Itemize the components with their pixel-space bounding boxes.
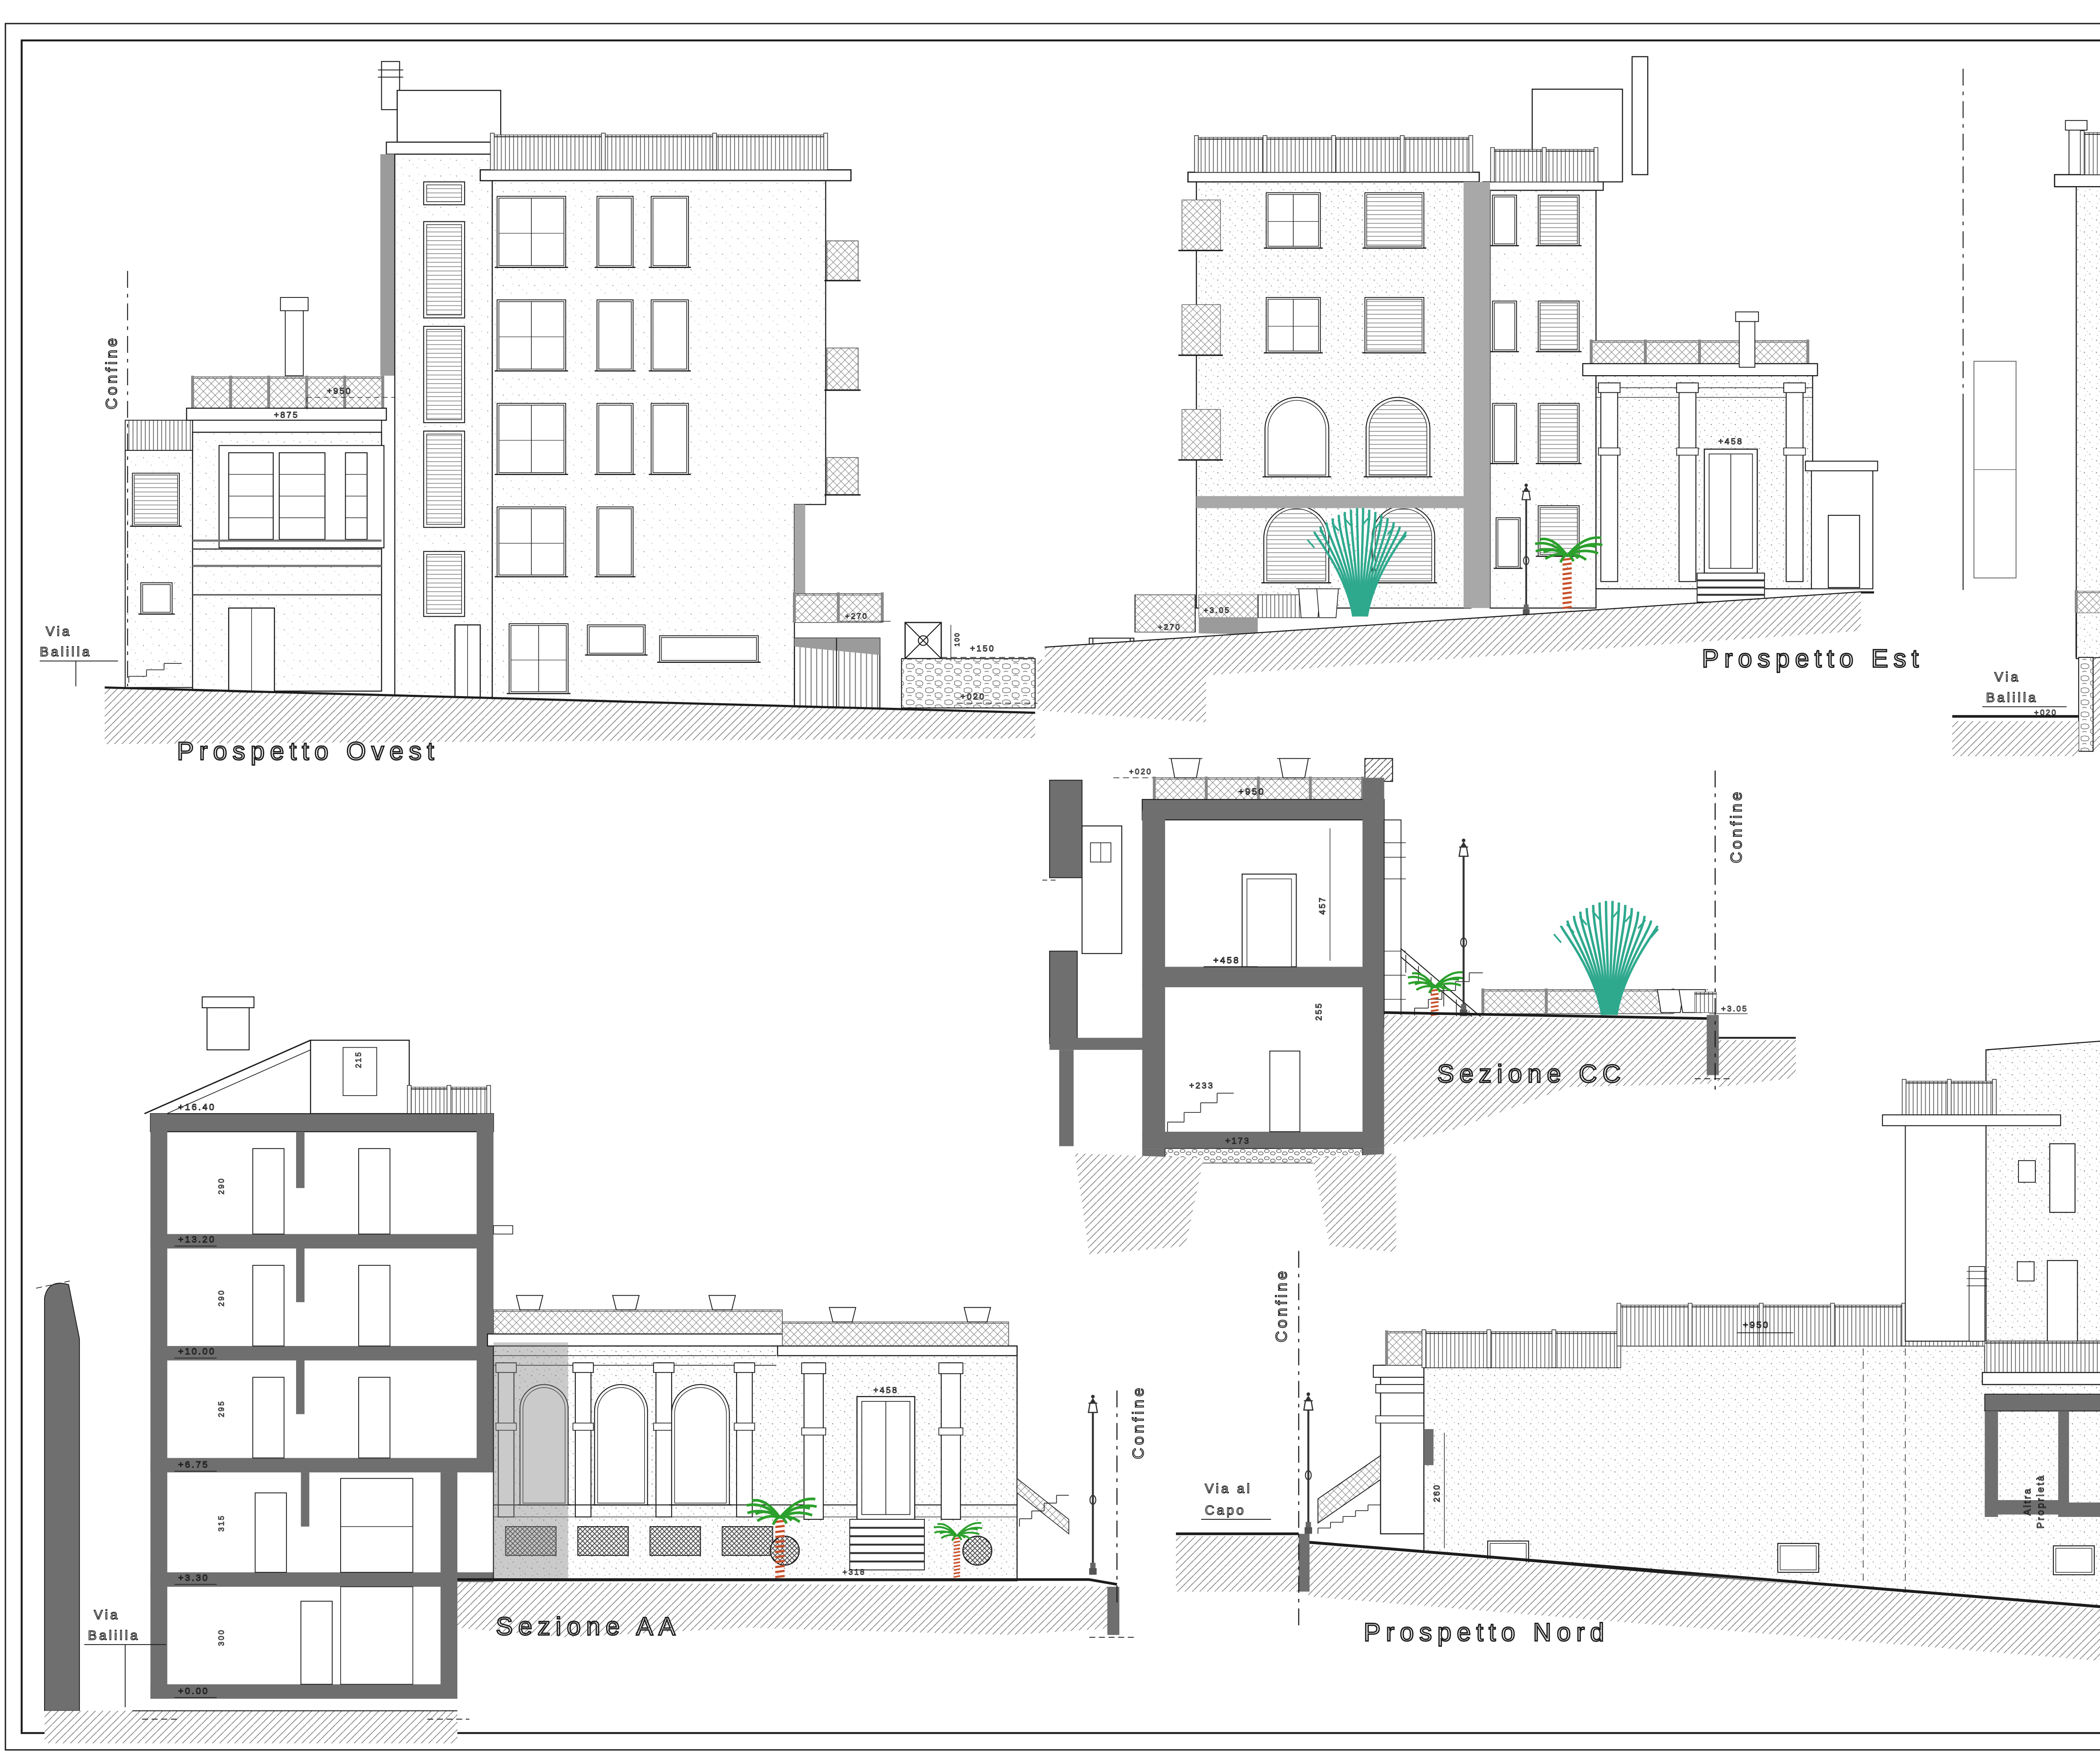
svg-text:+10.00: +10.00 — [178, 1346, 216, 1356]
svg-text:Altra: Altra — [2022, 1487, 2033, 1516]
svg-text:Prospetto Est: Prospetto Est — [1702, 644, 1924, 673]
svg-text:+020: +020 — [1129, 767, 1152, 776]
svg-text:Balilla: Balilla — [88, 1627, 140, 1643]
svg-text:+233: +233 — [1189, 1081, 1214, 1091]
svg-text:+270: +270 — [1158, 623, 1181, 631]
svg-text:255: 255 — [1315, 1002, 1324, 1020]
svg-text:Prospetto Ovest: Prospetto Ovest — [177, 737, 439, 765]
svg-text:Via al: Via al — [1205, 1481, 1252, 1496]
svg-text:Prospetto Nord: Prospetto Nord — [1364, 1618, 1609, 1646]
svg-text:+173: +173 — [1225, 1137, 1250, 1146]
svg-text:300: 300 — [217, 1629, 226, 1646]
svg-text:+458: +458 — [1213, 955, 1240, 965]
svg-text:+3.30: +3.30 — [178, 1573, 209, 1583]
svg-text:+318: +318 — [843, 1568, 866, 1577]
svg-text:+0.00: +0.00 — [178, 1686, 209, 1696]
svg-text:+458: +458 — [1718, 437, 1743, 447]
svg-text:290: 290 — [217, 1177, 226, 1194]
svg-text:Proprietà: Proprietà — [2035, 1474, 2046, 1529]
svg-text:Balilla: Balilla — [1986, 690, 2038, 705]
svg-text:Sezione AA: Sezione AA — [496, 1612, 681, 1640]
svg-text:215: 215 — [354, 1051, 363, 1068]
svg-text:Confine: Confine — [1727, 789, 1745, 863]
svg-text:290: 290 — [217, 1289, 226, 1306]
svg-text:Confine: Confine — [1272, 1268, 1290, 1343]
svg-text:+950: +950 — [1743, 1320, 1770, 1330]
svg-text:+6.75: +6.75 — [178, 1460, 209, 1470]
svg-text:Capo: Capo — [1205, 1502, 1246, 1517]
svg-text:+020: +020 — [961, 692, 986, 702]
svg-text:+13.20: +13.20 — [178, 1235, 216, 1245]
svg-text:Sezione CC: Sezione CC — [1437, 1060, 1626, 1088]
svg-text:Confine: Confine — [1129, 1385, 1147, 1459]
svg-text:295: 295 — [217, 1400, 226, 1417]
svg-text:+270: +270 — [845, 612, 868, 620]
svg-text:+875: +875 — [274, 411, 299, 420]
svg-text:260: 260 — [1432, 1484, 1441, 1502]
svg-text:Via: Via — [1995, 669, 2021, 684]
svg-text:+950: +950 — [1238, 787, 1265, 797]
svg-text:457: 457 — [1318, 896, 1327, 915]
svg-text:100: 100 — [954, 632, 961, 647]
svg-text:Confine: Confine — [102, 335, 120, 410]
svg-text:+3.05: +3.05 — [1204, 606, 1231, 615]
svg-text:Balilla: Balilla — [40, 644, 92, 659]
svg-text:+950: +950 — [327, 386, 352, 396]
svg-text:+458: +458 — [873, 1386, 898, 1395]
svg-text:+16.40: +16.40 — [178, 1102, 216, 1112]
svg-text:315: 315 — [217, 1514, 226, 1532]
svg-text:+150: +150 — [970, 644, 995, 654]
svg-text:Via: Via — [94, 1607, 120, 1622]
svg-text:+020: +020 — [2034, 708, 2057, 717]
svg-text:+3.05: +3.05 — [1721, 1004, 1748, 1013]
svg-text:Via: Via — [46, 623, 72, 639]
